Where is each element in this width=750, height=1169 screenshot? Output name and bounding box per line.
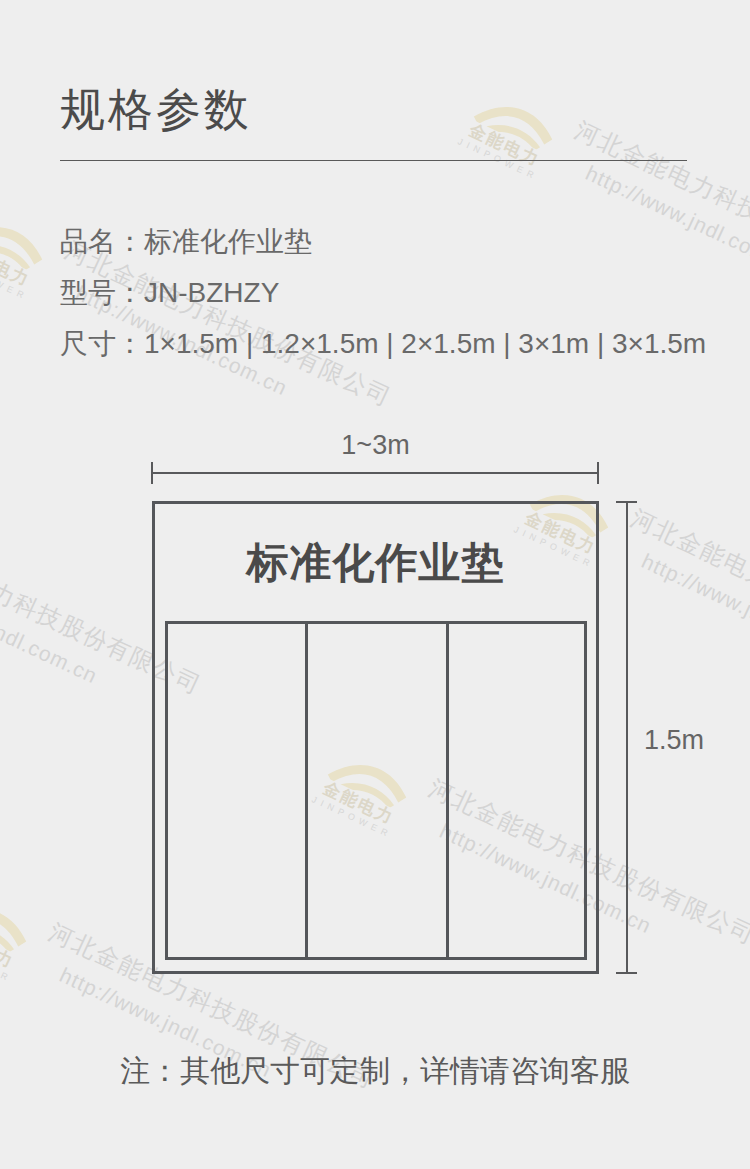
width-dimension-label: 1~3m [152, 432, 599, 459]
mat-section-divider [305, 624, 308, 957]
note-text: 注：其他尺寸可定制，详情请咨询客服 [0, 1054, 750, 1089]
height-dimension-tick-top [616, 501, 637, 503]
spec-row-name: 品名： 标准化作业垫 [60, 228, 706, 256]
width-dimension-tick-right [597, 462, 599, 484]
height-dimension-tick-bottom [616, 972, 637, 974]
spec-value: JN-BZHZY [144, 279, 279, 307]
mat-title: 标准化作业垫 [152, 542, 599, 584]
width-dimension-line [152, 472, 599, 474]
height-dimension-label: 1.5m [644, 727, 704, 754]
spec-row-size: 尺寸： 1×1.5m | 1.2×1.5m | 2×1.5m | 3×1m | … [60, 330, 706, 358]
product-spec-page: 金能电力 JINPOWER 河北金能电力科技股份有限公司 http://www.… [0, 0, 750, 1169]
spec-list: 品名： 标准化作业垫 型号： JN-BZHZY 尺寸： 1×1.5m | 1.2… [60, 228, 706, 381]
spec-value: 标准化作业垫 [144, 228, 312, 256]
page-title: 规格参数 [60, 84, 252, 136]
spec-label: 品名： [60, 228, 144, 256]
width-dimension-tick-left [151, 462, 153, 484]
mat-inner-box [165, 621, 587, 960]
spec-row-model: 型号： JN-BZHZY [60, 279, 706, 307]
spec-value: 1×1.5m | 1.2×1.5m | 2×1.5m | 3×1m | 3×1.… [144, 330, 706, 358]
spec-label: 型号： [60, 279, 144, 307]
mat-section-divider [446, 624, 449, 957]
height-dimension-line [626, 501, 628, 974]
title-divider [60, 160, 687, 161]
content-layer: 规格参数 品名： 标准化作业垫 型号： JN-BZHZY 尺寸： 1×1.5m … [0, 0, 750, 1169]
spec-label: 尺寸： [60, 330, 144, 358]
